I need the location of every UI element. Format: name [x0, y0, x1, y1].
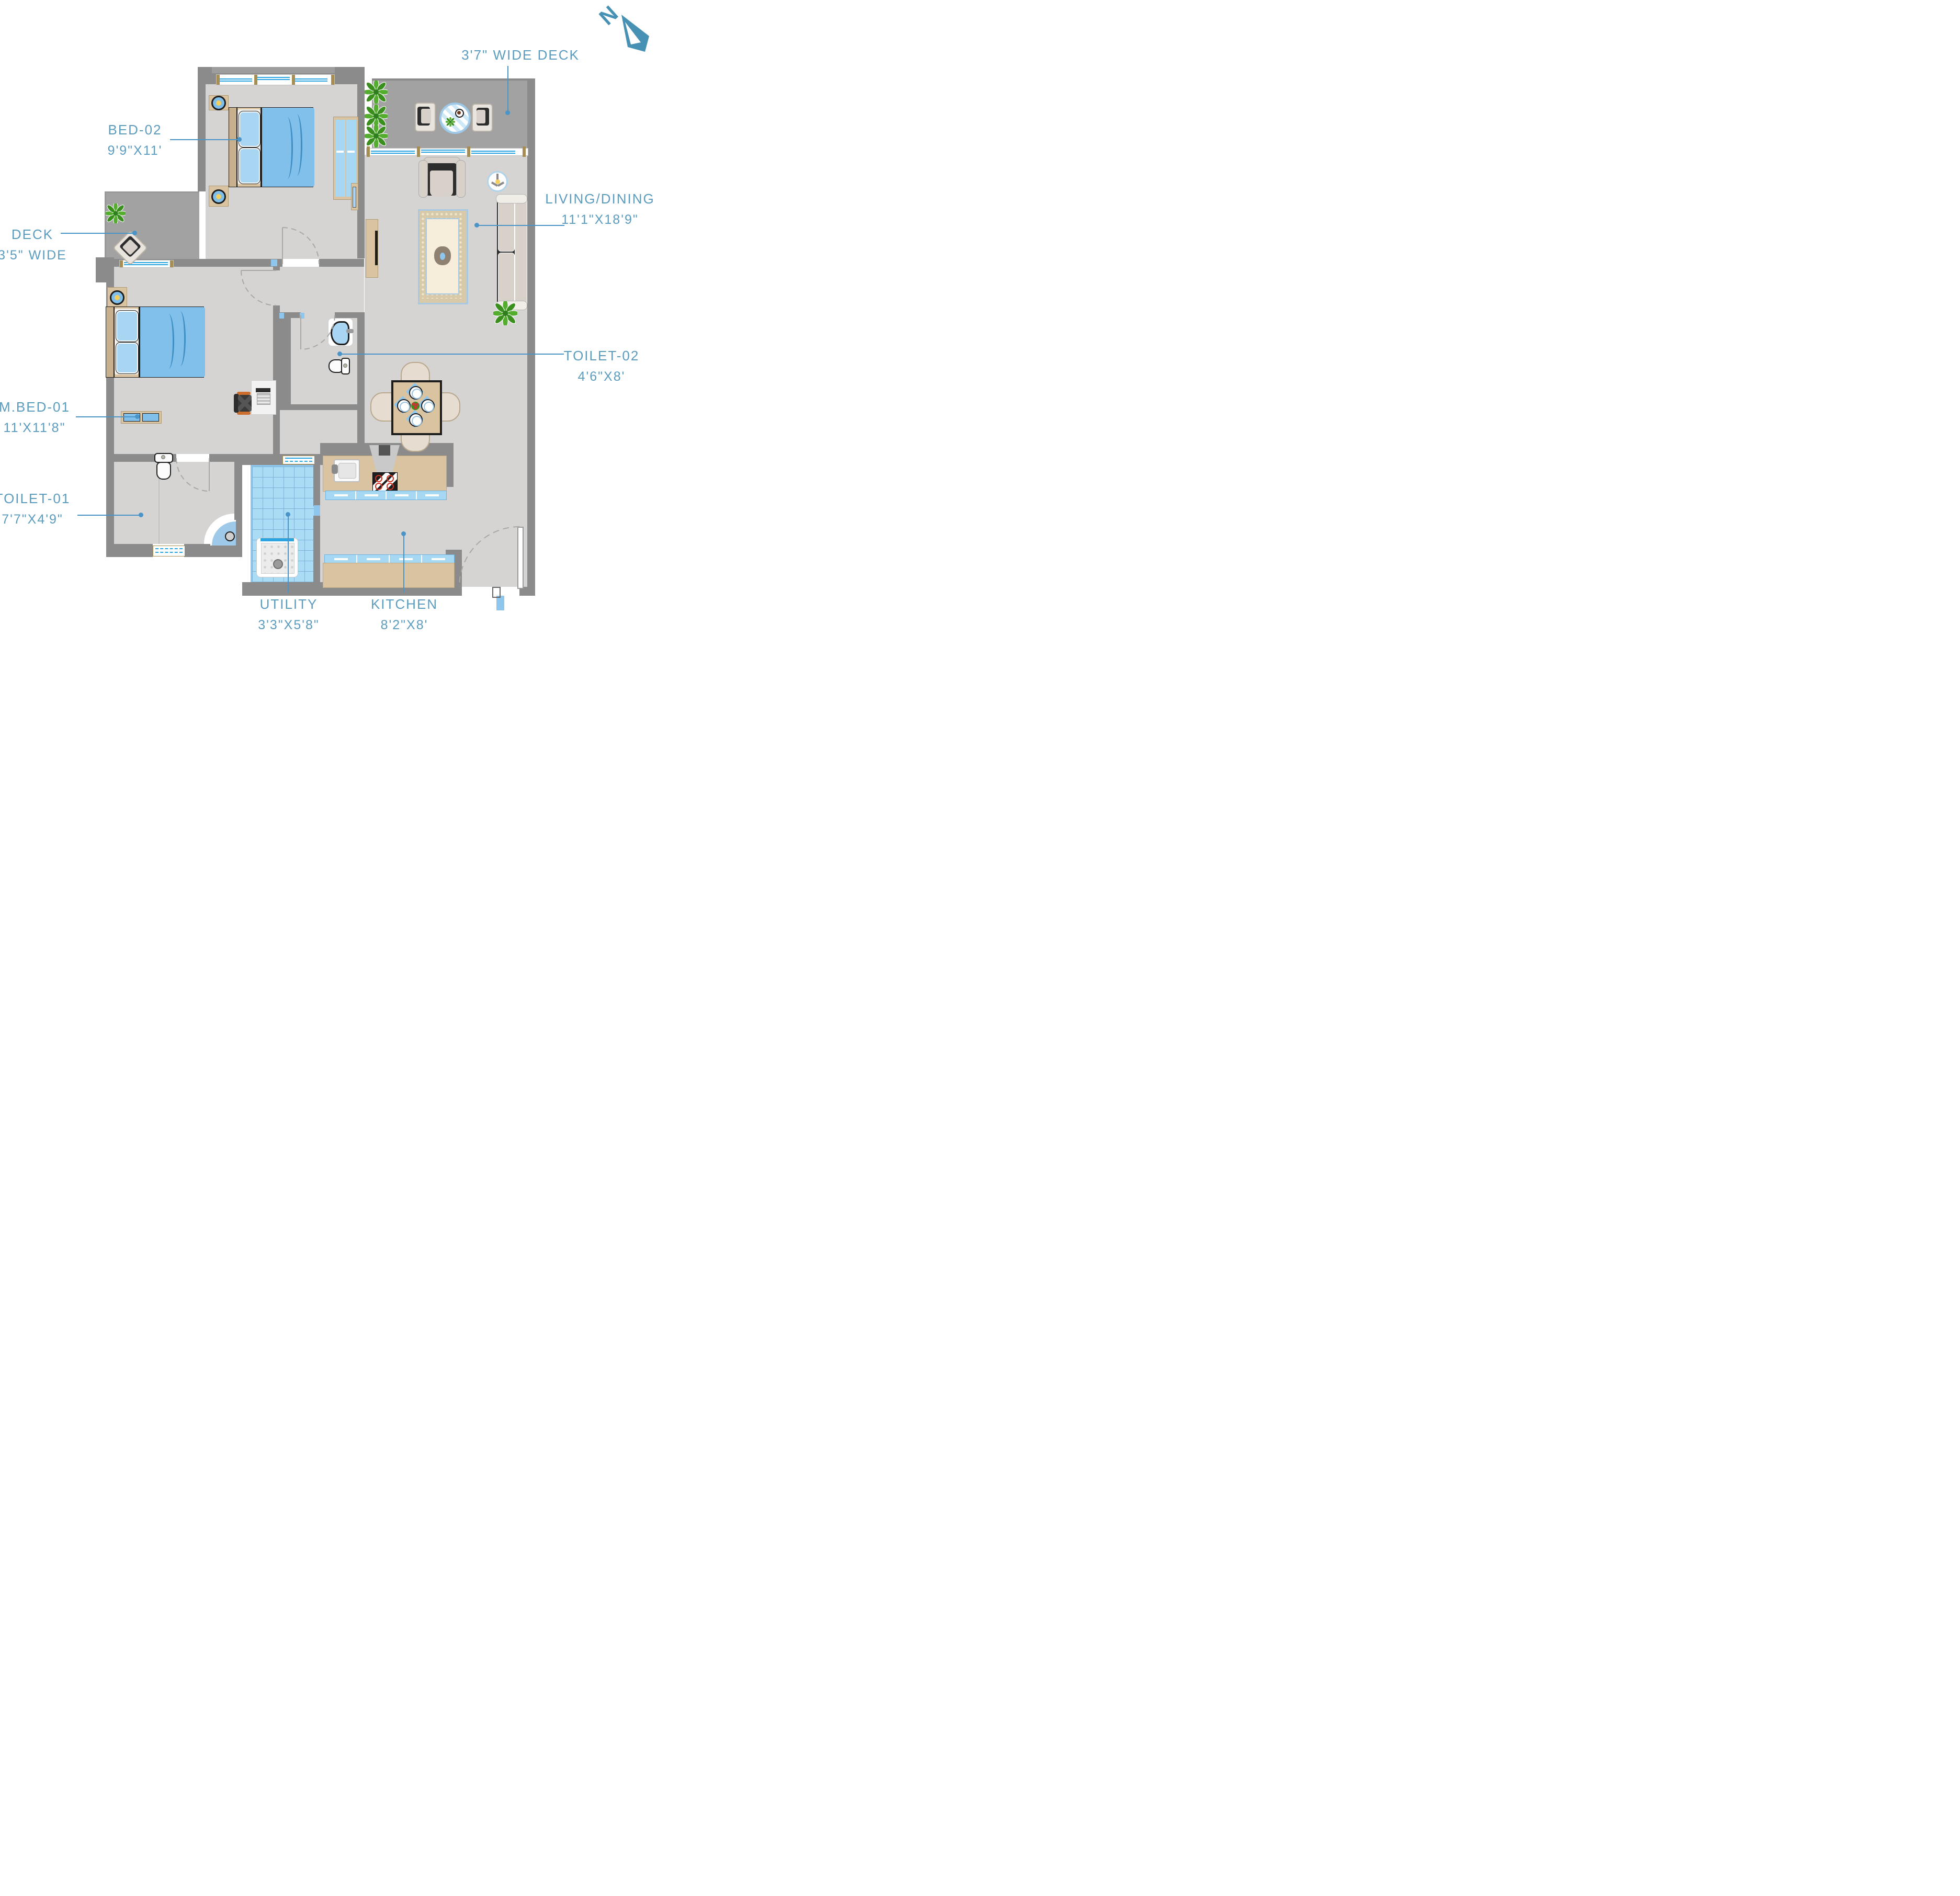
leader-dot-living [474, 223, 479, 228]
window-glass [155, 548, 183, 549]
leader-dot-kitchen [401, 531, 406, 536]
armchair-cushion [477, 110, 485, 123]
floor-plan: 3'7" WIDE DECK BED-02 9'9"X11' LIVING/DI… [0, 0, 653, 632]
wall-mbed-right-b [273, 305, 280, 454]
mbed-pillow-1 [116, 311, 138, 342]
plate-inner [412, 416, 422, 426]
handle [365, 494, 378, 496]
cabinet-divider [421, 555, 422, 563]
handle [432, 558, 445, 560]
dresser-mirror [353, 187, 356, 208]
plate-inner [412, 389, 422, 399]
cabinet-divider [389, 555, 390, 563]
window-post [292, 75, 295, 85]
toilet02-toilet [328, 358, 348, 372]
room-dims: 3'3"X5'8" [258, 615, 320, 632]
chair-seat [238, 395, 252, 412]
rug-center [426, 218, 459, 294]
label-utility: UTILITY 3'3"X5'8" [258, 594, 320, 632]
sink-faucet [346, 329, 354, 333]
kitchen-sink [334, 459, 360, 482]
room-dims: 9'9"X11' [108, 140, 163, 161]
ceiling-fan-icon [487, 171, 508, 192]
mbed-bench [121, 411, 162, 424]
living-rug [418, 209, 468, 304]
centerpiece-flowers [411, 402, 420, 410]
label-kitchen: KITCHEN 8'2"X8' [371, 594, 438, 632]
handle [367, 558, 380, 560]
wall-toilet02-left [280, 312, 291, 410]
room-name: KITCHEN [371, 594, 438, 615]
plant-icon [365, 81, 388, 104]
hood-vent [379, 445, 390, 456]
window-post [523, 146, 526, 157]
entrance-door-leaf [517, 527, 524, 589]
dining-chair-left [370, 392, 393, 422]
rug-medallion-center [440, 253, 445, 260]
shower-head [225, 531, 235, 541]
leader-bed02 [170, 139, 239, 140]
sink-faucet [332, 464, 338, 474]
label-toilet01: TOILET-01 7'7"X4'9" [0, 488, 70, 530]
window-toilet01 [153, 546, 185, 557]
threshold-bed02-door [271, 259, 277, 266]
window-glass [220, 78, 252, 82]
kitchen-counter-bottom [323, 563, 455, 588]
leader-dot-toilet02 [337, 351, 342, 356]
room-dims: 4'6"X8' [564, 366, 640, 387]
label-bed02: BED-02 9'9"X11' [108, 119, 163, 161]
plate [409, 413, 423, 427]
room-dims: 3'5" WIDE [0, 245, 67, 266]
tray-inner [261, 543, 294, 574]
leader-deck-left [61, 233, 135, 234]
blanket-fold [291, 114, 302, 176]
kitchen-upper-cabinets [325, 491, 447, 500]
room-name: 3'7" WIDE DECK [461, 44, 580, 65]
sink-basin [338, 463, 356, 479]
wall-toilet01-bottom-a [106, 544, 153, 557]
window-post [467, 146, 470, 157]
threshold-toilet02-door-a [279, 313, 284, 319]
window-bed02-top [216, 74, 335, 85]
sofa-seat-2 [498, 253, 515, 305]
cabinet-divider [355, 491, 356, 499]
handle [347, 151, 355, 153]
stove-burner [387, 483, 394, 490]
window-post [331, 75, 334, 85]
deck-armchair-left [415, 103, 436, 132]
mbed-pillow-2 [116, 343, 138, 373]
armchair-arm-left [418, 160, 428, 198]
fan-center [495, 179, 500, 184]
plant-icon [493, 301, 517, 325]
leader-dot-mbed01 [135, 414, 140, 419]
entrance-door-stop [492, 587, 501, 598]
sofa-arm-top [496, 194, 527, 203]
leader-deck-top [507, 66, 508, 113]
bed02-blanket [260, 108, 314, 187]
plate [409, 386, 423, 400]
lamp-center [115, 295, 120, 300]
window-glass [257, 77, 290, 80]
leader-dot-toilet01 [139, 513, 143, 517]
wall-toilet01-left [106, 454, 114, 557]
leader-mbed01 [76, 416, 138, 417]
room-name: UTILITY [258, 594, 320, 615]
room-name: LIVING/DINING [545, 188, 653, 209]
leader-dot-deck-left [132, 231, 137, 235]
wall-toilet02-bottom [291, 404, 365, 410]
leader-toilet02 [341, 354, 564, 355]
north-arrow-icon: N [596, 1, 651, 60]
blanket-fold [175, 311, 186, 366]
window-post [217, 75, 220, 85]
leader-kitchen [403, 536, 404, 593]
wall-bed02-left [198, 67, 206, 191]
handle [425, 494, 439, 496]
label-deck-left: DECK 3'5" WIDE [0, 224, 67, 266]
leader-dot-utility [286, 512, 290, 517]
window-glass [285, 461, 312, 462]
wall-utility-kitchen-b [313, 516, 320, 582]
lamp-center [216, 100, 221, 106]
bed02-pillow-2 [239, 148, 260, 184]
wall-living-left-upper [357, 67, 365, 258]
label-living: LIVING/DINING 11'1"X18'9" [545, 188, 653, 230]
plate [397, 399, 411, 413]
window-post [170, 260, 173, 267]
deck-table [439, 103, 471, 134]
handle [334, 494, 348, 496]
mbed-lamp [110, 290, 124, 305]
blanket-fold [163, 314, 174, 369]
room-dims: 8'2"X8' [371, 615, 438, 632]
deck-armchair-right [472, 104, 493, 132]
utility-washer-tray [256, 538, 298, 577]
toilet01-toilet [154, 453, 172, 479]
north-letter: N [596, 1, 622, 30]
window-glass [155, 552, 183, 553]
wall-toilet02-right [357, 312, 365, 410]
sofa-back [515, 198, 527, 306]
armchair-seat [430, 171, 453, 197]
room-name: BED-02 [108, 119, 163, 140]
cabinet-divider [416, 491, 417, 499]
wall-bed02-bottom-b [319, 259, 364, 267]
plate-inner [424, 402, 434, 412]
chair-armrest [237, 412, 251, 415]
living-sofa [496, 194, 527, 309]
window-post [120, 260, 123, 267]
toilet-bowl [156, 462, 171, 480]
room-name: TOILET-02 [564, 345, 640, 366]
stove-burner [375, 475, 382, 482]
toilet-button [343, 364, 347, 368]
north-needle [621, 15, 649, 52]
window-deck-living [366, 148, 528, 156]
label-mbed01: M.BED-01 11'X11'8" [0, 396, 70, 438]
armchair-cushion [421, 109, 431, 123]
laptop-screen [256, 388, 270, 392]
mbed-blanket [139, 307, 205, 377]
mbed-desk [251, 380, 276, 415]
wall-living-right [527, 78, 535, 596]
tray-drain [273, 559, 283, 569]
plant-icon [446, 117, 455, 127]
wall-toilet01-bottom-b [184, 544, 242, 557]
window-glass [371, 151, 415, 154]
bed02-pillow-1 [239, 111, 260, 147]
wardrobe-door-1 [335, 120, 345, 197]
kitchen-stove [372, 472, 398, 491]
living-armchair [418, 157, 464, 200]
bench-cushion [142, 413, 159, 422]
mbed-bed [106, 306, 204, 378]
handle [334, 558, 348, 560]
leader-toilet01 [77, 515, 141, 516]
wall-kitchen-stub [446, 456, 454, 487]
bed02-lamp-top [211, 96, 226, 110]
stove-burner [387, 475, 394, 482]
dining-table [391, 380, 442, 435]
room-dims: 7'7"X4'9" [0, 509, 70, 530]
room-name: TOILET-01 [0, 488, 70, 509]
window-glass [471, 151, 515, 154]
label-deck-top: 3'7" WIDE DECK [461, 44, 580, 65]
cabinet-divider [356, 555, 357, 563]
window-post [254, 75, 257, 85]
leader-dot-bed02 [237, 137, 242, 142]
handle [336, 151, 344, 153]
window-glass [295, 78, 327, 82]
tv-screen [375, 231, 378, 265]
window-post [367, 146, 370, 157]
window-post [417, 146, 420, 157]
plate-inner [400, 402, 410, 412]
cabinet-divider [386, 491, 387, 499]
toilet02-sink [328, 318, 353, 346]
window-glass [421, 150, 465, 153]
vent-hall-utility [282, 456, 315, 464]
laptop-keyboard [257, 393, 270, 405]
wall-bed02-bottom-a [198, 259, 282, 267]
threshold-utility-kitchen [314, 505, 320, 516]
lamp-center [216, 194, 221, 199]
room-name: DECK [0, 224, 67, 245]
sink-basin [331, 321, 349, 345]
plant-icon [365, 124, 388, 147]
toilet-button [161, 455, 165, 459]
threshold-toilet02-door-b [300, 313, 304, 319]
stove-burner [375, 483, 382, 490]
leader-dot-deck-top [505, 110, 510, 115]
bed02-lamp-bottom [211, 189, 226, 204]
tray-top-edge [260, 538, 294, 541]
mbed-headboard [106, 307, 115, 377]
armchair-arm-right [456, 160, 466, 198]
room-dims: 11'X11'8" [0, 417, 70, 438]
bed02-dresser [351, 183, 358, 210]
bed02-bed [229, 107, 313, 187]
handle [395, 494, 409, 496]
room-name: M.BED-01 [0, 396, 70, 417]
leader-utility [288, 516, 289, 593]
plate [421, 399, 435, 413]
mbed-office-chair [234, 392, 253, 415]
bed02-headboard [229, 108, 237, 187]
handle [399, 558, 413, 560]
wall-bed02-top-recess [212, 67, 335, 73]
plant-icon [106, 203, 126, 223]
label-toilet02: TOILET-02 4'6"X8' [564, 345, 640, 387]
room-dims: 11'1"X18'9" [545, 209, 653, 230]
window-glass [285, 458, 312, 459]
coffee [457, 111, 461, 115]
threshold-entrance [496, 596, 504, 610]
